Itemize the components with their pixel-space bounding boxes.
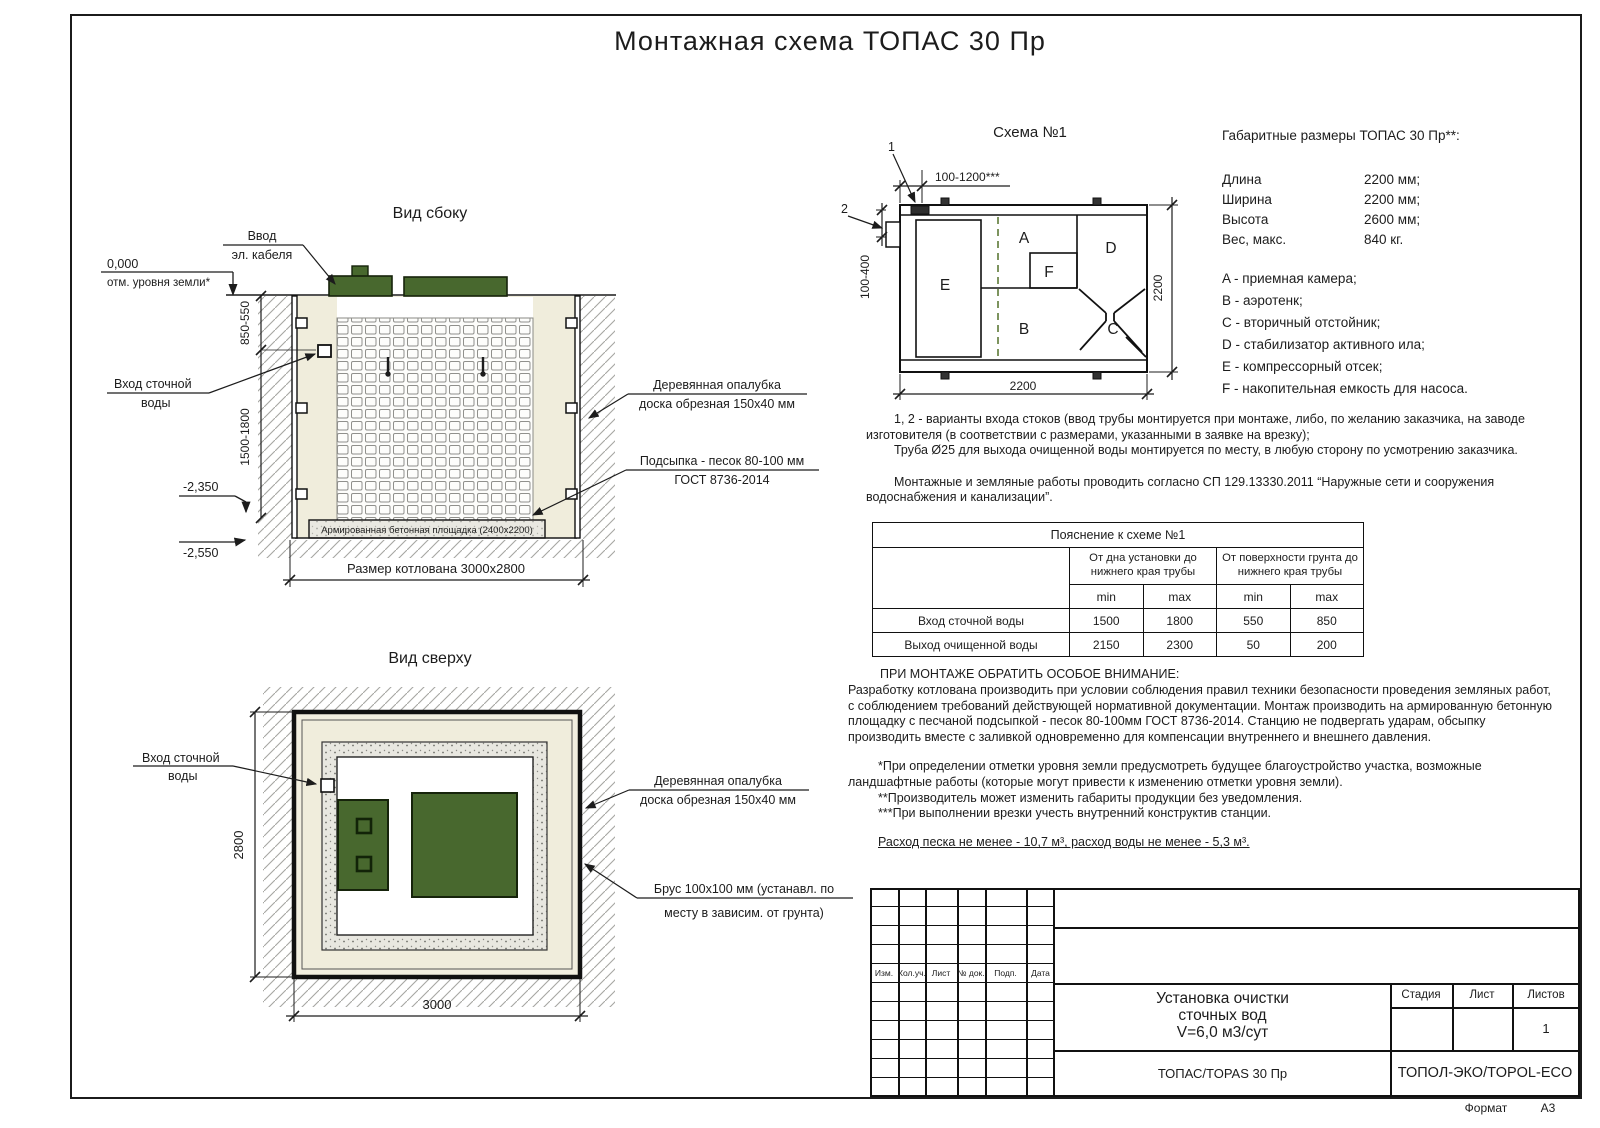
- table-group1-header: От дна установки до нижнего края трубы: [1070, 548, 1217, 585]
- top-inlet-label-2: воды: [168, 769, 197, 783]
- specs-block: Габаритные размеры ТОПАС 30 Пр**: Длина2…: [1222, 128, 1558, 143]
- sheet-header: Лист: [1452, 983, 1512, 1007]
- legend-item: A - приемная камера;: [1222, 268, 1558, 290]
- dim-1500-1800: 1500-1800: [238, 408, 252, 466]
- row-value: 50: [1217, 633, 1291, 657]
- spec-row: Ширина2200 мм;: [1222, 190, 1558, 210]
- sheets-value: 1: [1512, 1007, 1580, 1050]
- spec-value: 2200 мм;: [1364, 172, 1420, 187]
- schema-dim-bottom-label: 2200: [1010, 379, 1037, 393]
- compartment-c: C: [1107, 321, 1118, 338]
- row-value: 2150: [1070, 633, 1144, 657]
- schema-dim-top-label: 100-1200***: [935, 170, 1000, 184]
- spec-value: 2200 мм;: [1364, 192, 1420, 207]
- tb-col-data: Дата: [1026, 964, 1055, 983]
- spec-row: Длина2200 мм;: [1222, 170, 1558, 190]
- attention-body: Разработку котлована производить при усл…: [848, 683, 1556, 746]
- stage-header: Стадия: [1390, 983, 1452, 1007]
- side-top-gap: [337, 297, 533, 318]
- spec-value: 840 кг.: [1364, 232, 1403, 247]
- top-inlet-label-1: Вход сточной: [142, 751, 220, 765]
- note-pipe: Труба Ø25 для выхода очищенной воды монт…: [866, 443, 1558, 459]
- top-formwork-label-2: доска обрезная 150х40 мм: [640, 793, 796, 807]
- tb-col-podp: Подп.: [985, 964, 1026, 983]
- compartment-legend: A - приемная камера; B - аэротенк; C - в…: [1222, 268, 1558, 400]
- top-dim-3000-label: 3000: [423, 997, 452, 1012]
- table-min-header: min: [1070, 585, 1144, 609]
- legend-item: C - вторичный отстойник;: [1222, 312, 1558, 334]
- spec-row: Высота2600 мм;: [1222, 210, 1558, 230]
- compartment-b: B: [1019, 321, 1029, 338]
- compartment-e: E: [940, 277, 950, 294]
- tb-col-ndok: № док.: [957, 964, 985, 983]
- side-formwork-label-2: доска обрезная 150х40 мм: [639, 397, 795, 411]
- legend-item: B - аэротенк;: [1222, 290, 1558, 312]
- top-dim-2800-label: 2800: [231, 831, 246, 860]
- tb-col-list: Лист: [925, 964, 957, 983]
- cable-label-2: эл. кабеля: [232, 248, 293, 262]
- schema-dim-left-label: 100-400: [858, 255, 872, 299]
- ground-mark-label: отм. уровня земли*: [107, 277, 211, 289]
- footnote-3: ***При выполнении врезки учесть внутренн…: [848, 806, 1556, 822]
- tb-col-izm: Изм.: [870, 964, 898, 983]
- top-formwork-label-1: Деревянная опалубка: [654, 774, 782, 788]
- top-view-drawing: Вход сточной воды 2800 3000 Деревянная о…: [100, 645, 860, 1025]
- row-value: 850: [1290, 609, 1364, 633]
- table-max-header: max: [1290, 585, 1364, 609]
- top-covers: [338, 793, 517, 897]
- doc-title-line-2: сточных вод: [1055, 1007, 1390, 1024]
- beam-label-1: Брус 100х100 мм (устанавл. по: [654, 882, 834, 896]
- title-block-grid: Изм. Кол.уч. Лист № док. Подп. Дата: [870, 888, 1055, 1097]
- row-value: 2300: [1143, 633, 1217, 657]
- side-inlet-label-2: воды: [141, 396, 170, 410]
- pit-dim-label: Размер котлована 3000х2800: [347, 561, 525, 576]
- bedding-label-1: Подсыпка - песок 80-100 мм: [640, 454, 804, 468]
- dim-850-550: 850-550: [238, 301, 252, 345]
- specs-rows: Длина2200 мм; Ширина2200 мм; Высота2600 …: [1222, 170, 1558, 250]
- spec-label: Ширина: [1222, 190, 1364, 210]
- zero-mark-label: 0,000: [107, 257, 138, 271]
- schema-dim-right-label: 2200: [1151, 274, 1165, 301]
- cable-label-1: Ввод: [248, 229, 278, 243]
- specs-title: Габаритные размеры ТОПАС 30 Пр**:: [1222, 128, 1558, 143]
- footnotes: *При определении отметки уровня земли пр…: [848, 759, 1556, 822]
- spec-label: Высота: [1222, 210, 1364, 230]
- model-label: ТОПАС/TOPAS 30 Пр: [1055, 1050, 1390, 1097]
- tb-col-koluch: Кол.уч.: [898, 964, 925, 983]
- attention-block: ПРИ МОНТАЖЕ ОБРАТИТЬ ОСОБОЕ ВНИМАНИЕ: Ра…: [848, 667, 1556, 851]
- callout-1-leader: [893, 154, 915, 202]
- attention-heading: ПРИ МОНТАЖЕ ОБРАТИТЬ ОСОБОЕ ВНИМАНИЕ:: [848, 667, 1556, 683]
- sheets-header: Листов: [1512, 983, 1580, 1007]
- row-value: 550: [1217, 609, 1291, 633]
- cable-leader: [303, 245, 335, 284]
- side-view-drawing: Армированная бетонная площадка (2400х220…: [90, 195, 830, 595]
- drawing-sheet: Монтажная схема ТОПАС 30 Пр Вид сбоку Ви…: [0, 0, 1600, 1128]
- spec-value: 2600 мм;: [1364, 212, 1420, 227]
- explanation-table: Пояснение к схеме №1 От дна установки до…: [872, 522, 1364, 657]
- table-row: Вход сточной воды 1500 1800 550 850: [873, 609, 1364, 633]
- compartment-f: F: [1044, 264, 1053, 281]
- slab-label: Армированная бетонная площадка (2400х220…: [321, 525, 533, 536]
- table-max-header: max: [1143, 585, 1217, 609]
- notes-block: 1, 2 - варианты входа стоков (ввод трубы…: [866, 412, 1558, 506]
- callout-2-label: 2: [841, 202, 848, 216]
- level-marks: [179, 496, 246, 542]
- table-group2-header: От поверхности грунта до нижнего края тр…: [1217, 548, 1364, 585]
- consumption-note: Расход песка не менее - 10,7 м³, расход …: [848, 835, 1556, 851]
- manhole-covers: [329, 266, 507, 296]
- table-title: Пояснение к схеме №1: [873, 523, 1364, 548]
- row-name: Выход очищенной воды: [873, 633, 1070, 657]
- row-value: 1800: [1143, 609, 1217, 633]
- schema-drawing: E A F B D C 1 2 100-1200*** 100-400: [835, 115, 1185, 405]
- mark-2350-label: -2,350: [183, 480, 218, 494]
- row-value: 1500: [1070, 609, 1144, 633]
- legend-item: D - стабилизатор активного ила;: [1222, 334, 1558, 356]
- format-label: Формат: [1455, 1101, 1517, 1115]
- note-variants: 1, 2 - варианты входа стоков (ввод трубы…: [866, 412, 1558, 443]
- table-corner-cell: [873, 548, 1070, 609]
- footnote-2: **Производитель может изменить габариты …: [848, 791, 1556, 807]
- doc-title-line-3: V=6,0 м3/сут: [1055, 1024, 1390, 1041]
- side-formwork-label-1: Деревянная опалубка: [653, 378, 781, 392]
- side-tank-body: [337, 318, 533, 520]
- spec-label: Вес, макс.: [1222, 230, 1364, 250]
- mark-2550-label: -2,550: [183, 546, 218, 560]
- side-inlet-label-1: Вход сточной: [114, 377, 192, 391]
- spec-row: Вес, макс.840 кг.: [1222, 230, 1558, 250]
- callout-1-label: 1: [888, 140, 895, 154]
- doc-title-line-1: Установка очистки: [1055, 990, 1390, 1007]
- inlet-pipe-stub: [318, 345, 331, 357]
- tb-divider: [1055, 927, 1580, 929]
- compartment-a: A: [1019, 230, 1030, 247]
- row-name: Вход сточной воды: [873, 609, 1070, 633]
- beam-label-2: месту в зависим. от грунта): [664, 906, 824, 920]
- table-min-header: min: [1217, 585, 1291, 609]
- top-inlet-stub: [321, 779, 334, 792]
- company-label: ТОПОЛ-ЭКО/TOPOL-ECO: [1390, 1050, 1580, 1097]
- legend-item: E - компрессорный отсек;: [1222, 356, 1558, 378]
- format-value: А3: [1530, 1101, 1566, 1115]
- page-title: Монтажная схема ТОПАС 30 Пр: [600, 26, 1060, 57]
- compartment-d: D: [1105, 240, 1116, 257]
- row-value: 200: [1290, 633, 1364, 657]
- note-works: Монтажные и земляные работы проводить со…: [866, 475, 1558, 506]
- legend-item: F - накопительная емкость для насоса.: [1222, 378, 1558, 400]
- spec-label: Длина: [1222, 170, 1364, 190]
- table-row: Выход очищенной воды 2150 2300 50 200: [873, 633, 1364, 657]
- bedding-label-2: ГОСТ 8736-2014: [674, 473, 769, 487]
- callout-2-leader: [848, 216, 882, 228]
- doc-title: Установка очистки сточных вод V=6,0 м3/с…: [1055, 985, 1390, 1041]
- footnote-1: *При определении отметки уровня земли пр…: [848, 759, 1556, 791]
